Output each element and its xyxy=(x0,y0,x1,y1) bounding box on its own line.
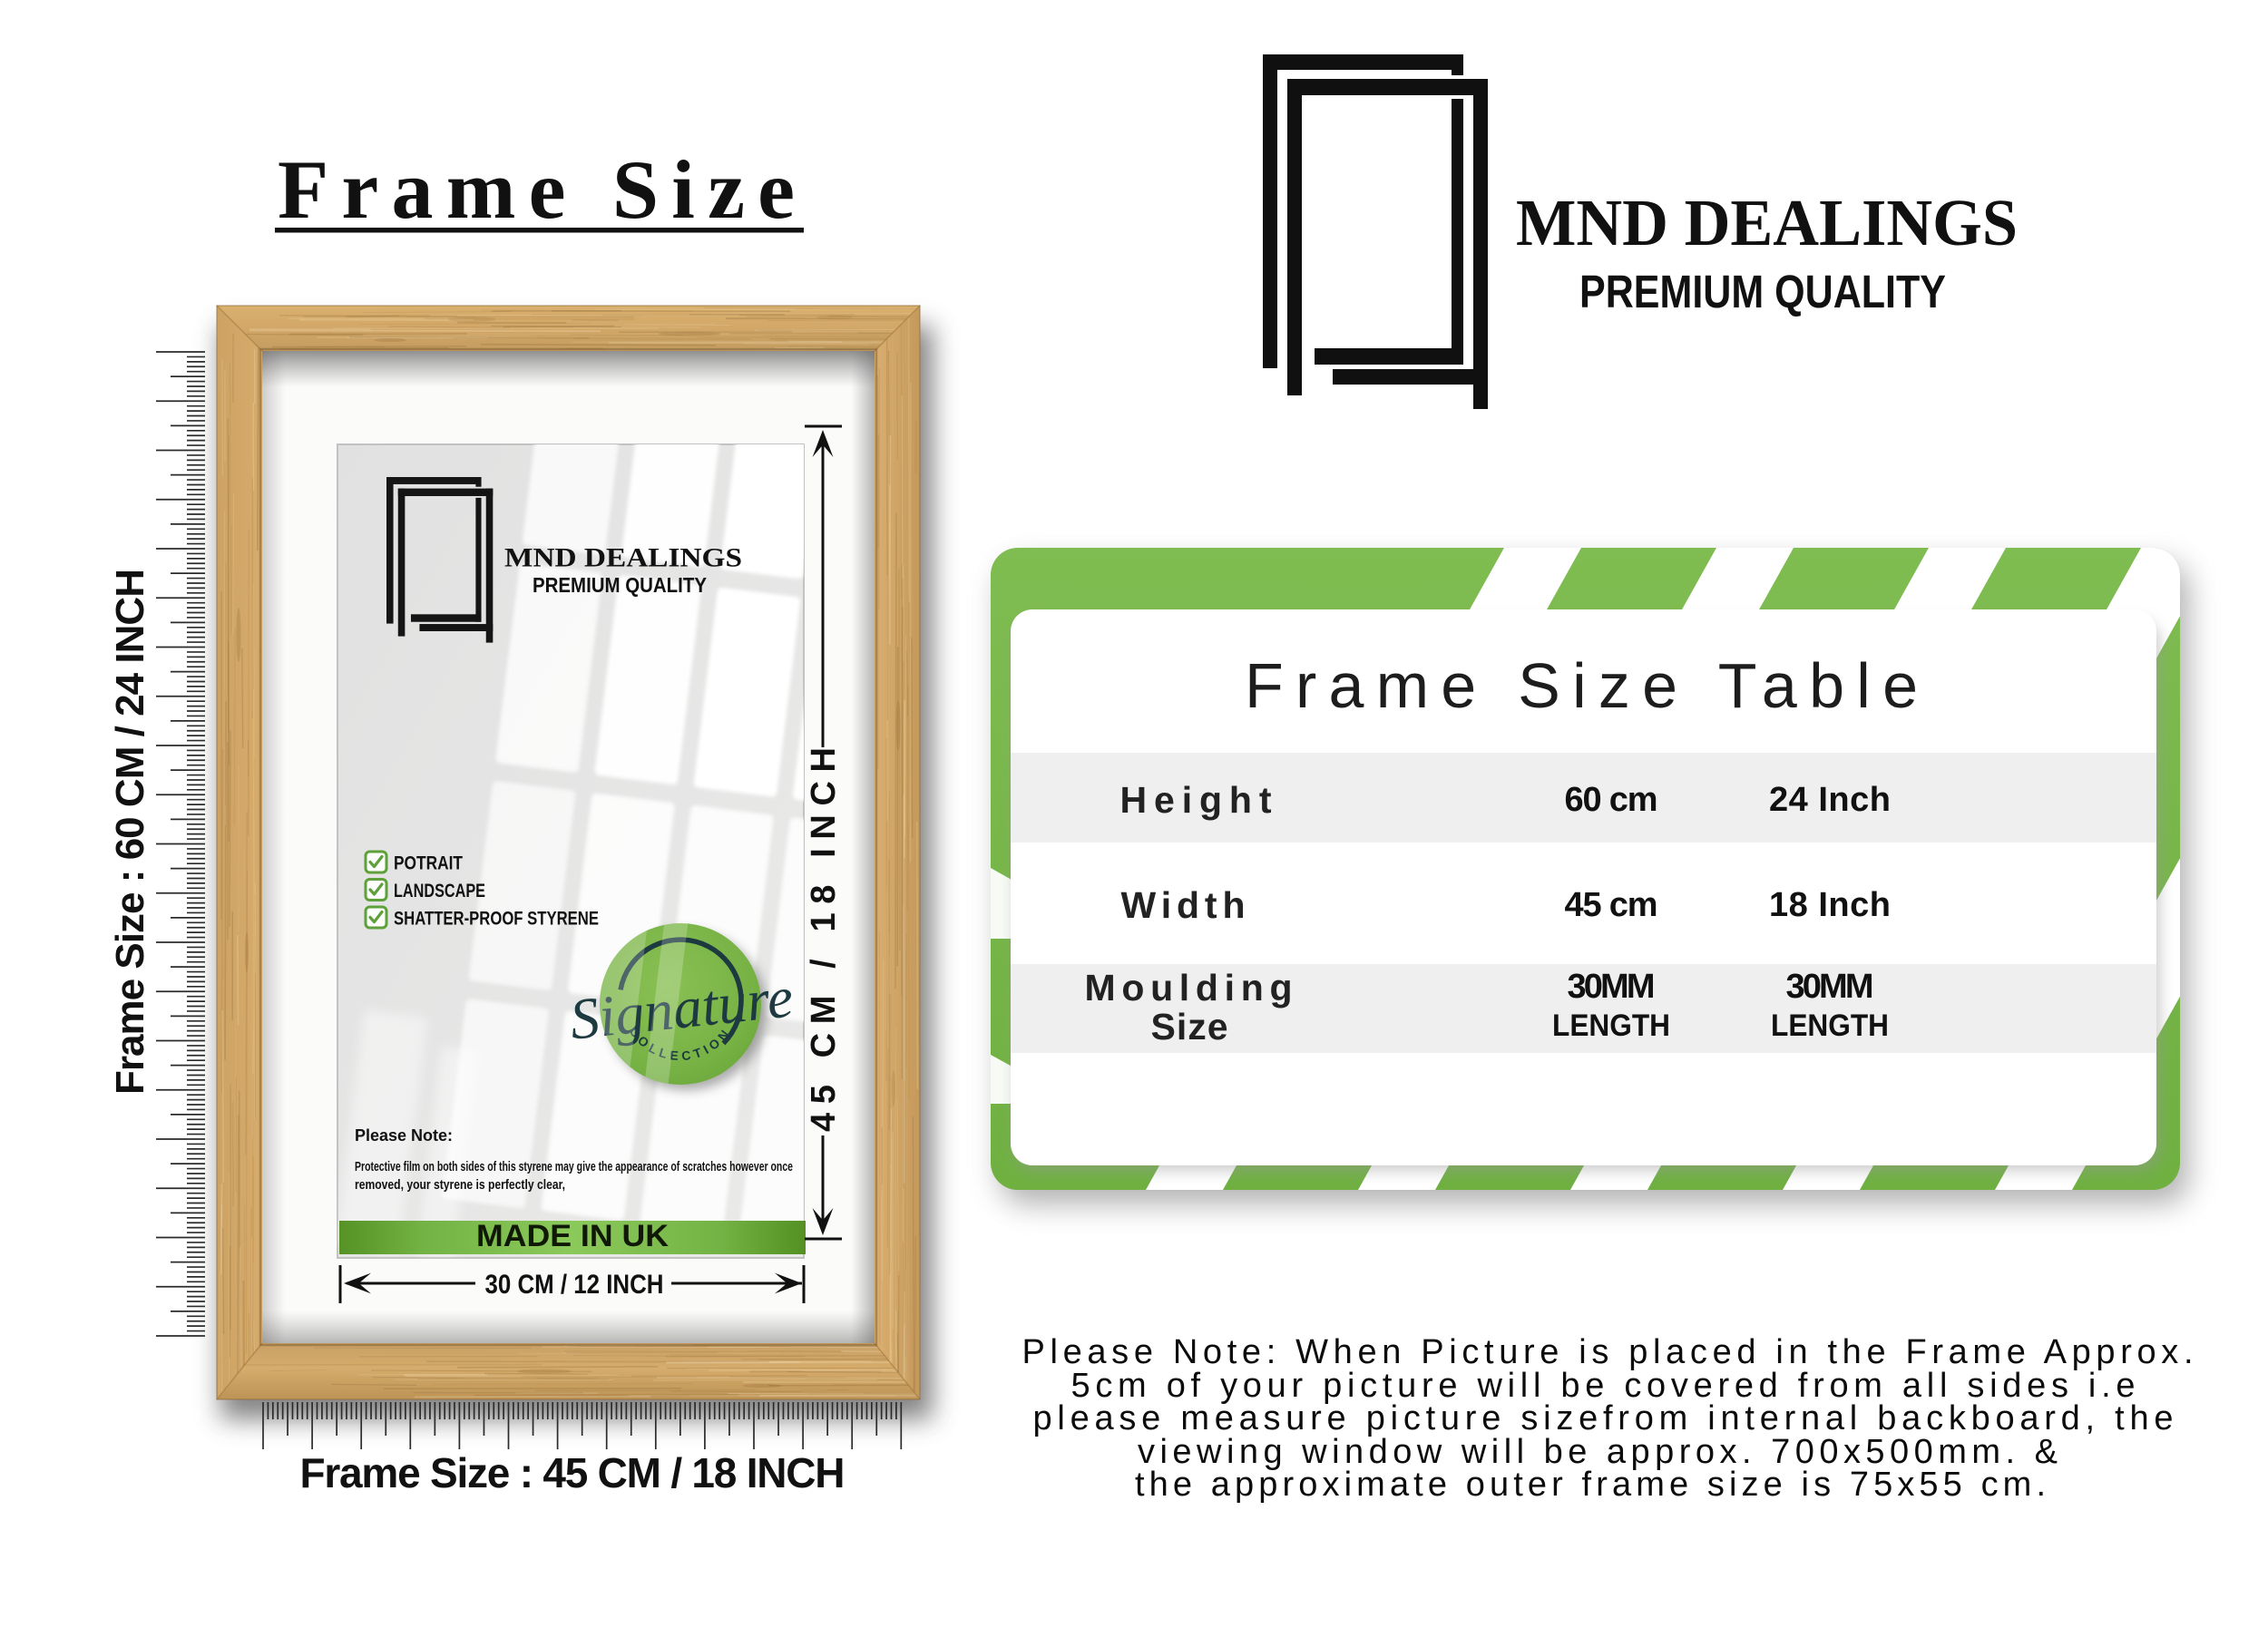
svg-text:SHATTER-PROOF STYRENE: SHATTER-PROOF STYRENE xyxy=(394,909,599,930)
svg-text:30MM: 30MM xyxy=(1568,968,1656,1006)
svg-text:30 CM / 12 INCH: 30 CM / 12 INCH xyxy=(485,1270,664,1300)
svg-text:Frame Size : 45 CM / 18 INCH: Frame Size : 45 CM / 18 INCH xyxy=(300,1449,846,1496)
svg-text:the approximate outer frame si: the approximate outer frame size is 75x5… xyxy=(1135,1466,2046,1504)
svg-text:removed, your styrene is perfe: removed, your styrene is perfectly clear… xyxy=(355,1178,565,1193)
svg-text:LENGTH: LENGTH xyxy=(1552,1009,1670,1043)
svg-text:Frame Size : 60 CM / 24 INCH: Frame Size : 60 CM / 24 INCH xyxy=(108,569,152,1095)
svg-text:Please Note: When Picture is p: Please Note: When Picture is placed in t… xyxy=(1022,1333,2194,1371)
svg-text:Frame Size: Frame Size xyxy=(278,143,795,236)
svg-text:MND DEALINGS: MND DEALINGS xyxy=(504,543,742,573)
svg-text:MND DEALINGS: MND DEALINGS xyxy=(1516,186,2018,259)
svg-text:POTRAIT: POTRAIT xyxy=(394,853,463,874)
svg-text:LANDSCAPE: LANDSCAPE xyxy=(394,881,485,901)
svg-text:Size: Size xyxy=(1151,1006,1228,1047)
svg-text:PREMIUM QUALITY: PREMIUM QUALITY xyxy=(533,573,707,597)
svg-text:Protective film on both sides: Protective film on both sides of this st… xyxy=(355,1160,793,1174)
svg-text:please measure picture sizefro: please measure picture sizefrom internal… xyxy=(1033,1399,2174,1437)
svg-text:18 Inch: 18 Inch xyxy=(1769,886,1891,924)
svg-text:Width: Width xyxy=(1121,884,1246,926)
svg-text:MADE IN UK: MADE IN UK xyxy=(476,1219,669,1253)
svg-text:LENGTH: LENGTH xyxy=(1771,1009,1889,1043)
svg-text:45 cm: 45 cm xyxy=(1565,886,1658,924)
svg-text:24 Inch: 24 Inch xyxy=(1769,781,1891,819)
svg-text:30MM: 30MM xyxy=(1786,968,1874,1006)
svg-text:PREMIUM QUALITY: PREMIUM QUALITY xyxy=(1579,266,1946,317)
svg-text:Frame Size Table: Frame Size Table xyxy=(1245,650,1918,721)
svg-text:60 cm: 60 cm xyxy=(1565,781,1658,819)
svg-text:Please Note:: Please Note: xyxy=(355,1126,453,1145)
